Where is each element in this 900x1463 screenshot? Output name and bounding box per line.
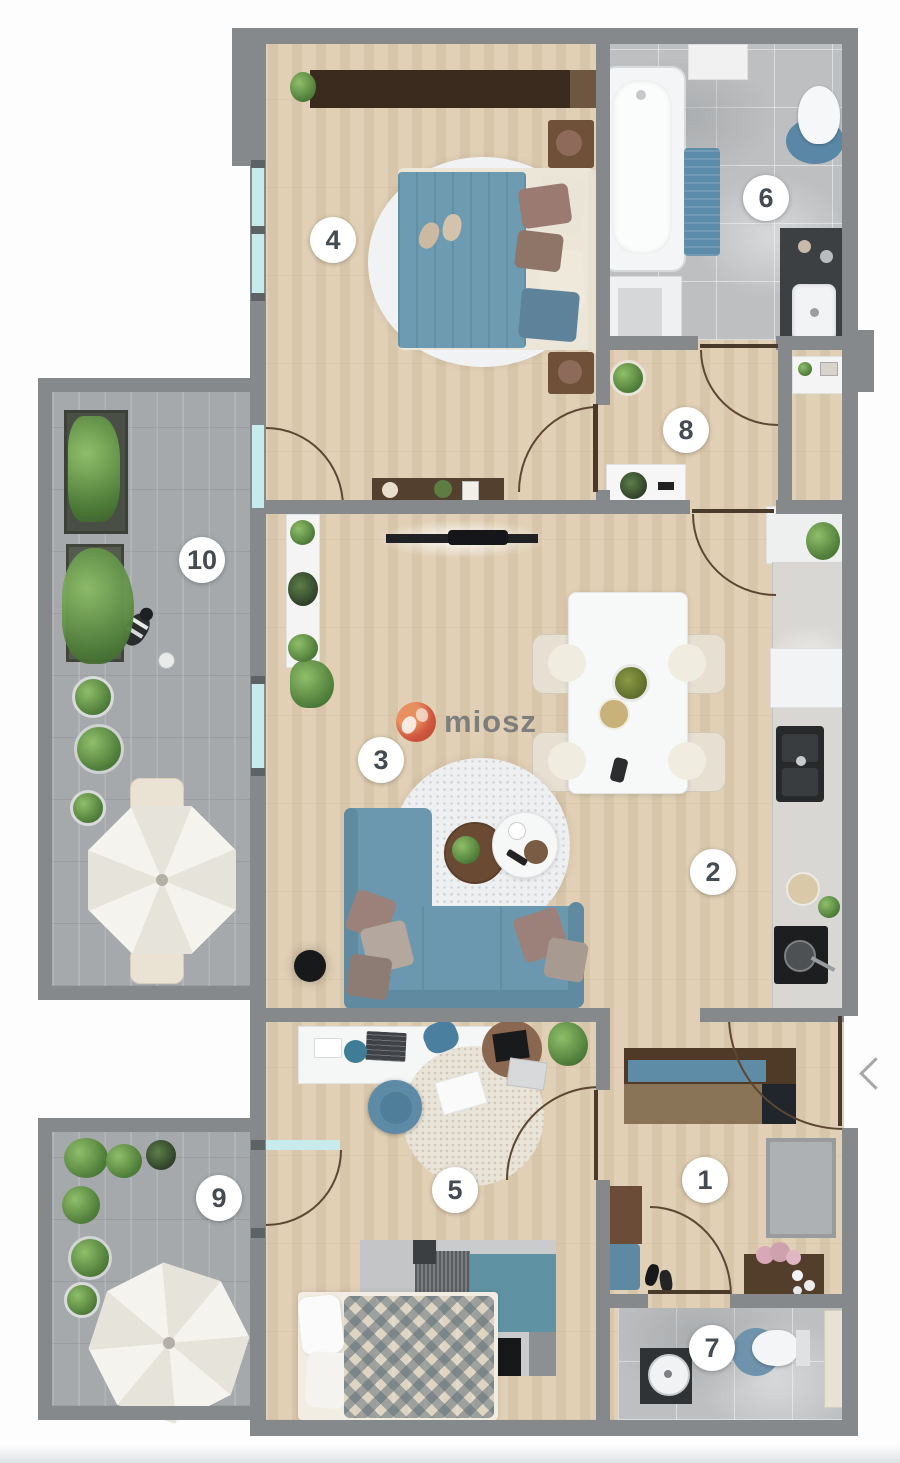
wall-room5-right-c (596, 1308, 610, 1420)
terrace9-plant (106, 1144, 142, 1178)
bath7-door-leaf (648, 1290, 730, 1294)
console-plate (382, 482, 398, 498)
room5-pillow (297, 1294, 345, 1356)
bath6-tub-drain (636, 90, 646, 100)
bath6-shelf (688, 44, 748, 80)
shelf-plant (288, 572, 318, 606)
terrace10-wall-left (38, 378, 52, 1000)
room5-plant (548, 1022, 588, 1066)
wall-bath7-top-a (610, 1294, 648, 1308)
watermark-logo-icon (396, 702, 436, 742)
floorplan-image-viewer: 1 2 3 4 5 6 7 8 9 10 miosz (0, 0, 900, 1463)
terrace10-wall-bottom (38, 986, 266, 1000)
planter-foliage (62, 548, 134, 664)
badge-room-9: 9 (196, 1175, 242, 1221)
bedroom4-bed-blanket (398, 172, 526, 348)
wall-bath6-bottom-b (776, 336, 858, 350)
room5-terrace-door-open-leaf (266, 1140, 340, 1150)
wall-bath7-top-b (730, 1294, 858, 1308)
window-jamb (251, 293, 265, 301)
wall-room5-right-b (596, 1180, 610, 1308)
terrace10-chair (130, 778, 184, 810)
room5-duvet-triangle-pattern (344, 1296, 494, 1418)
room5-door-leaf (594, 1090, 598, 1180)
terrace10-chair (130, 952, 184, 984)
tv-soundbar (448, 530, 508, 545)
niche-frame (820, 362, 838, 376)
badge-room-3: 3 (358, 737, 404, 783)
bath7-shelf (824, 1310, 844, 1408)
wall-right-upper (842, 28, 858, 1016)
rug-patch (529, 1332, 556, 1376)
bath6-toilet (798, 86, 840, 144)
badge-room-7: 7 (689, 1325, 735, 1371)
bedroom4-cushion (514, 229, 564, 272)
terrace9-wall-bottom (38, 1406, 250, 1420)
kitchen-sink-basin (782, 768, 818, 796)
kitchen-plant (806, 522, 840, 560)
terrace9-plant (146, 1140, 176, 1170)
wall-bottom (250, 1420, 858, 1436)
wall-hall8-left-a (596, 350, 610, 405)
niche-plant (798, 362, 812, 376)
terrace10-wall-top (38, 378, 250, 392)
hall8-console-plant (620, 472, 647, 499)
window-jamb (251, 160, 265, 168)
room5-papers (314, 1038, 342, 1058)
umbrella-pole (163, 1337, 175, 1349)
wall-living-bottom-b (700, 1008, 844, 1022)
terrace9-wall-top (38, 1118, 250, 1132)
bath6-soap (798, 240, 811, 253)
badge-room-10: 10 (179, 537, 225, 583)
apartment-floorplan: 1 2 3 4 5 6 7 8 9 10 miosz (0, 0, 900, 1463)
bath7-toilet (752, 1330, 798, 1366)
coffee-cup (508, 822, 526, 840)
window-jamb (251, 1140, 265, 1150)
kitchen-herbs (818, 896, 840, 918)
terrace10-pot (74, 724, 124, 774)
wall-top (250, 28, 858, 44)
terrace9-wall-left (38, 1118, 52, 1420)
shelf-plant (290, 520, 315, 545)
window-jamb (251, 226, 265, 234)
entry-doormat (766, 1138, 836, 1238)
entry-flowers (786, 1250, 801, 1265)
front-door-leaf (838, 1016, 842, 1126)
badge-room-8: 8 (663, 407, 709, 453)
bedroom4-lamp (558, 360, 582, 384)
terrace9-pot (68, 1236, 112, 1280)
bath6-sink-drain (810, 308, 819, 317)
kitchen2-door-leaf (692, 509, 774, 513)
bath6-tub-basin (612, 80, 672, 254)
entry-console-dish (792, 1270, 803, 1281)
wall-hall8-right (778, 350, 792, 500)
kitchen-plate (786, 872, 820, 906)
window-jamb (251, 768, 265, 776)
badge-room-5: 5 (432, 1167, 478, 1213)
badge-room-4: 4 (310, 217, 356, 263)
room5-laptop (365, 1031, 406, 1062)
window-jamb (251, 676, 265, 684)
wall-right-lower (842, 1128, 858, 1436)
bath7-sink-drain (664, 1370, 672, 1378)
dining-chair-seat (548, 742, 586, 780)
dining-salad-bowl (612, 664, 650, 702)
bedroom4-wardrobe (310, 70, 596, 108)
terrace9-plant (64, 1138, 108, 1178)
badge-room-6: 6 (743, 175, 789, 221)
wall-room5-right-a (596, 1008, 610, 1090)
window-jamb (251, 1228, 265, 1238)
kitchen-faucet (796, 756, 806, 766)
dining-plate (598, 698, 630, 730)
badge-room-2: 2 (690, 849, 736, 895)
bedroom4-entry-door-leaf (593, 404, 598, 492)
planter-foliage (68, 416, 120, 522)
bedroom4-plant (290, 72, 316, 102)
console-frame (462, 481, 479, 502)
bedroom4-lamp (556, 130, 582, 156)
terrace9-plant (62, 1186, 100, 1224)
next-image-edge (0, 1445, 900, 1463)
wall-bath6-bottom-a (596, 336, 698, 350)
wall-left-lower (250, 1010, 266, 1420)
kitchen-fridge (770, 648, 846, 708)
terrace10-watering-can (158, 652, 175, 669)
room5-chair-seat (380, 1092, 412, 1124)
wall-hall8-bottom-b (776, 500, 844, 514)
watermark: miosz (396, 702, 537, 742)
dining-chair-seat (548, 644, 586, 682)
badge-room-1: 1 (682, 1157, 728, 1203)
hall8-console-item (658, 482, 674, 490)
bath6-door-leaf (700, 344, 778, 348)
bath7-cistern (796, 1330, 810, 1366)
shelf-plant (288, 634, 318, 662)
dining-chair-seat (668, 742, 706, 780)
living-balcony-door (252, 680, 264, 770)
terrace10-pot (70, 790, 106, 826)
coffee-table-plant (452, 836, 480, 864)
hall8-plant (610, 360, 646, 396)
terrace10-pot (72, 676, 114, 718)
bath6-mat (684, 148, 720, 256)
sofa-cushion (543, 937, 589, 983)
bedroom4-cushion (517, 183, 572, 230)
bath6-washer-door (618, 288, 662, 336)
living-floor-plant (290, 660, 334, 708)
entry-console-dish (804, 1280, 815, 1291)
room5-mousepad (344, 1040, 367, 1063)
bedroom4-terrace-door (252, 425, 264, 508)
room5-grey-box (506, 1057, 548, 1090)
floor-lamp (294, 950, 326, 982)
umbrella-pole (156, 874, 168, 886)
wall-living-bottom-a (266, 1008, 596, 1022)
watermark-text: miosz (444, 704, 537, 740)
terrace9-pot (64, 1282, 100, 1318)
rug-patch (413, 1240, 437, 1264)
wall-hall8-bottom-a (266, 500, 690, 514)
sofa-cushion (345, 953, 392, 1000)
wall-bedroom4-bath6 (596, 44, 610, 336)
dining-chair-seat (668, 644, 706, 682)
bath6-soap (820, 250, 833, 263)
console-plant (434, 480, 452, 498)
bedroom4-throw (518, 288, 580, 343)
